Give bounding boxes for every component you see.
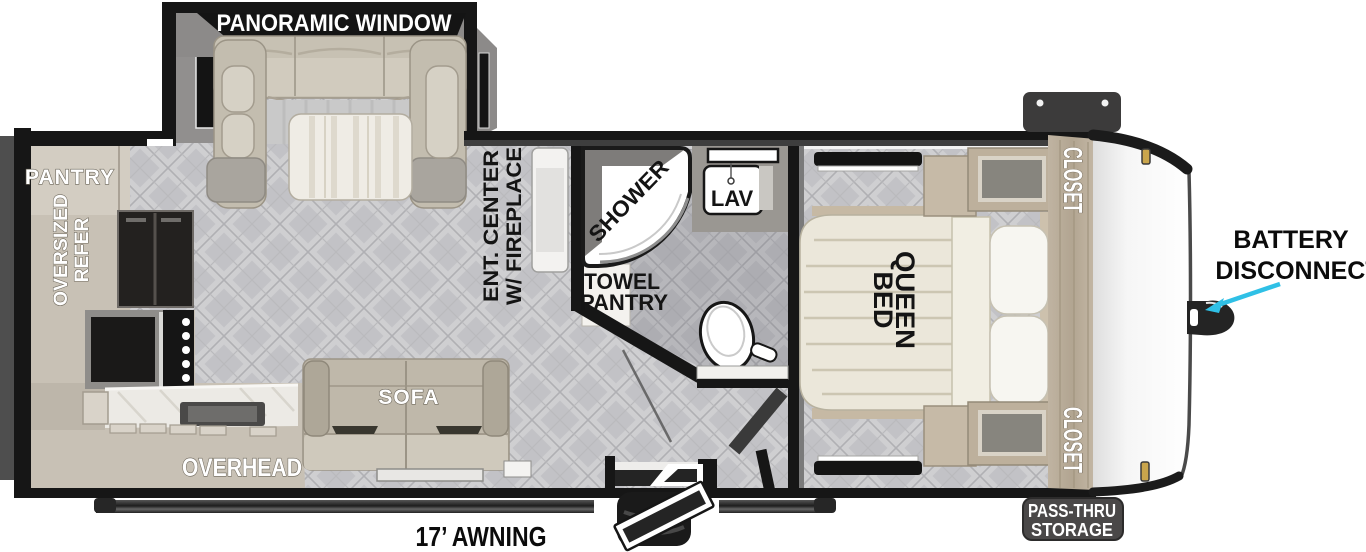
svg-text:DISCONNECT: DISCONNECT bbox=[1215, 257, 1366, 285]
svg-text:W/ FIREPLACE: W/ FIREPLACE bbox=[503, 147, 526, 305]
svg-text:BED: BED bbox=[868, 271, 898, 328]
svg-text:CLOSET: CLOSET bbox=[1058, 407, 1088, 473]
svg-text:REFER: REFER bbox=[72, 218, 93, 283]
svg-text:PANTRY: PANTRY bbox=[580, 290, 668, 315]
svg-text:BATTERY: BATTERY bbox=[1233, 226, 1349, 254]
svg-text:SOFA: SOFA bbox=[378, 386, 439, 409]
svg-text:STORAGE: STORAGE bbox=[1031, 520, 1113, 540]
svg-text:ENT. CENTER: ENT. CENTER bbox=[480, 150, 503, 302]
svg-text:CLOSET: CLOSET bbox=[1058, 147, 1088, 213]
svg-text:OVERHEAD: OVERHEAD bbox=[182, 454, 302, 482]
svg-text:PANTRY: PANTRY bbox=[25, 166, 115, 189]
svg-text:OVERSIZED: OVERSIZED bbox=[51, 194, 72, 306]
svg-text:PASS-THRU: PASS-THRU bbox=[1028, 501, 1116, 521]
svg-text:17’ AWNING: 17’ AWNING bbox=[416, 521, 547, 552]
svg-text:PANORAMIC WINDOW: PANORAMIC WINDOW bbox=[217, 10, 452, 37]
svg-text:LAV: LAV bbox=[711, 186, 754, 211]
